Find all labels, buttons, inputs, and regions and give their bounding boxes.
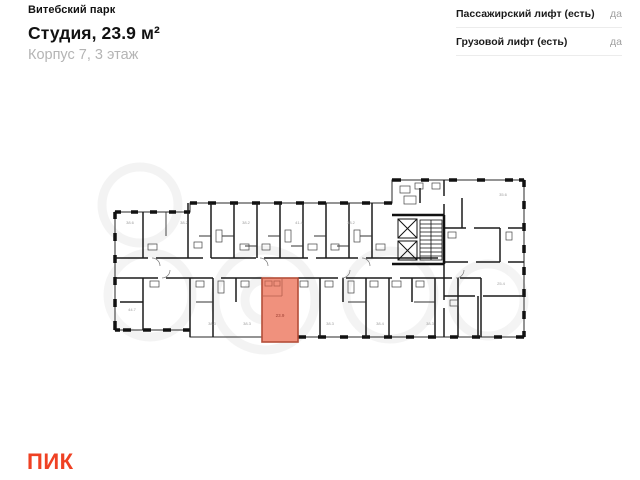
room-area-label: 35.6 xyxy=(499,192,508,197)
floorplan-svg: 23.9 38.638.238.241.438.235.625.444.738.… xyxy=(0,0,640,480)
room-area-label: 38.3 xyxy=(426,321,435,326)
room-area-label: 38.3 xyxy=(208,321,217,326)
room-area-label: 38.2 xyxy=(242,220,251,225)
room-area-label: 38.6 xyxy=(126,220,135,225)
selected-unit[interactable]: 23.9 xyxy=(262,278,298,342)
room-area-label: 41.4 xyxy=(295,220,304,225)
room-area-label: 38.3 xyxy=(243,321,252,326)
floorplan: 23.9 38.638.238.241.438.235.625.444.738.… xyxy=(0,0,640,480)
pik-logo[interactable]: ПИК xyxy=(27,449,74,475)
selected-unit-area[interactable] xyxy=(262,278,298,342)
room-area-label: 38.4 xyxy=(376,321,385,326)
room-area-label: 44.7 xyxy=(128,307,137,312)
room-area-label: 38.3 xyxy=(326,321,335,326)
room-area-label: 25.4 xyxy=(497,281,506,286)
partition-walls xyxy=(166,212,435,302)
selected-unit-area-label: 23.9 xyxy=(276,313,285,318)
stairs-icon xyxy=(420,220,442,260)
room-area-label: 38.2 xyxy=(347,220,356,225)
room-area-label: 38.2 xyxy=(180,220,189,225)
